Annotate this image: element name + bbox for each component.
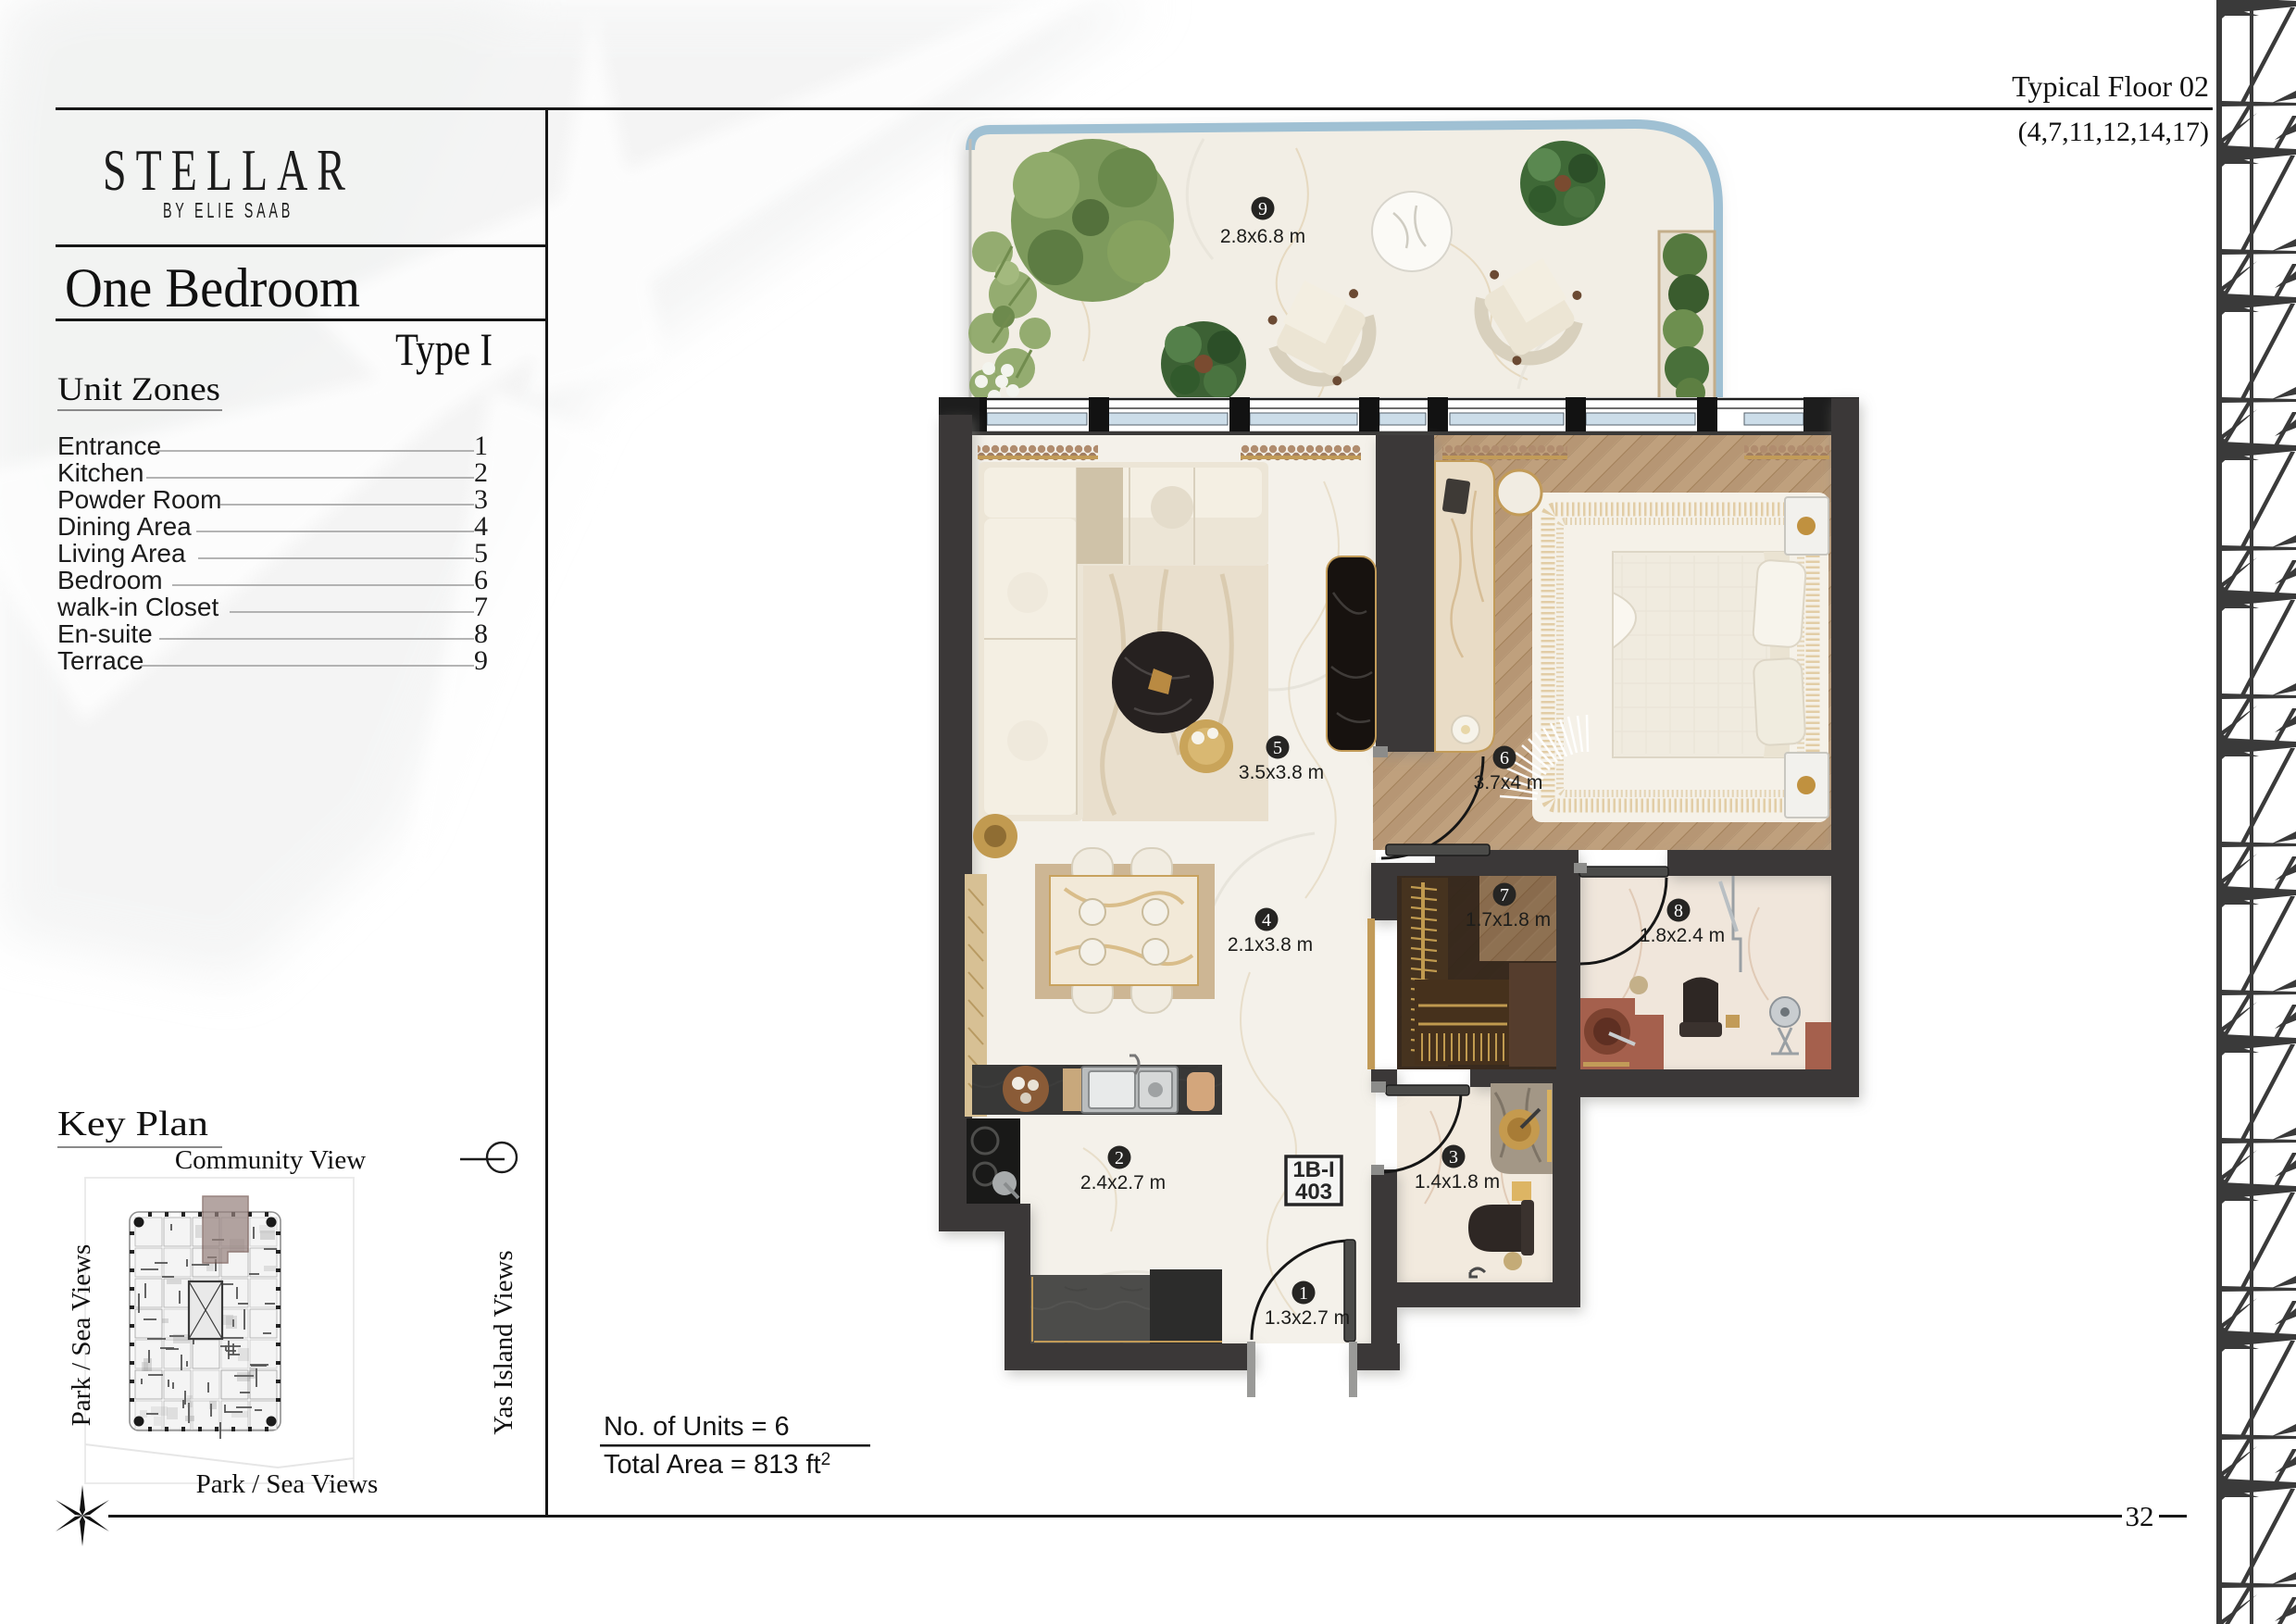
svg-text:6: 6: [1500, 748, 1509, 768]
svg-text:3: 3: [1449, 1147, 1458, 1168]
svg-text:Typical Floor 02: Typical Floor 02: [2012, 69, 2209, 103]
svg-text:Kitchen: Kitchen: [57, 458, 143, 487]
svg-text:1.4x1.8 m: 1.4x1.8 m: [1415, 1171, 1500, 1193]
svg-text:Yas Island Views: Yas Island Views: [489, 1250, 518, 1434]
svg-text:(4,7,11,12,14,17): (4,7,11,12,14,17): [2018, 117, 2209, 147]
svg-text:9: 9: [1258, 199, 1267, 219]
svg-text:Key Plan: Key Plan: [57, 1105, 208, 1143]
svg-text:Total Area = 813 ft2: Total Area = 813 ft2: [604, 1450, 830, 1480]
svg-text:3.5x3.8 m: 3.5x3.8 m: [1239, 762, 1324, 783]
svg-text:En-suite: En-suite: [57, 619, 153, 648]
svg-text:9: 9: [474, 645, 488, 676]
svg-text:2.1x3.8 m: 2.1x3.8 m: [1228, 934, 1313, 956]
svg-text:7: 7: [1500, 885, 1509, 906]
svg-text:4: 4: [1262, 910, 1271, 931]
svg-text:Type I: Type I: [395, 323, 493, 375]
svg-text:Unit Zones: Unit Zones: [57, 370, 220, 407]
svg-text:BY ELIE SAAB: BY ELIE SAAB: [163, 198, 293, 222]
svg-text:No. of Units = 6: No. of Units = 6: [604, 1412, 790, 1442]
svg-text:1.8x2.4 m: 1.8x2.4 m: [1640, 925, 1725, 946]
svg-text:1B-I: 1B-I: [1292, 1157, 1334, 1182]
svg-text:Living Area: Living Area: [57, 539, 186, 568]
svg-text:Park / Sea Views: Park / Sea Views: [67, 1244, 96, 1427]
svg-text:Entrance: Entrance: [57, 431, 161, 460]
svg-text:403: 403: [1295, 1180, 1332, 1205]
svg-text:One Bedroom: One Bedroom: [65, 257, 360, 319]
svg-text:Park / Sea Views: Park / Sea Views: [196, 1469, 379, 1499]
svg-text:5: 5: [1273, 738, 1282, 758]
svg-text:walk-in Closet: walk-in Closet: [56, 593, 218, 621]
svg-text:STELLAR: STELLAR: [103, 137, 355, 203]
svg-text:Dining Area: Dining Area: [57, 512, 192, 541]
svg-text:32: 32: [2126, 1500, 2154, 1532]
svg-text:1.3x2.7 m: 1.3x2.7 m: [1265, 1307, 1350, 1329]
svg-text:2.4x2.7 m: 2.4x2.7 m: [1080, 1172, 1166, 1193]
svg-text:Terrace: Terrace: [57, 646, 143, 675]
svg-text:1: 1: [1299, 1283, 1308, 1304]
svg-text:8: 8: [1674, 901, 1683, 921]
svg-text:Community View: Community View: [175, 1145, 366, 1175]
svg-text:1.7x1.8 m: 1.7x1.8 m: [1466, 909, 1551, 931]
svg-text:3.7x4 m: 3.7x4 m: [1474, 772, 1543, 793]
svg-text:Powder Room: Powder Room: [57, 485, 221, 514]
svg-text:Bedroom: Bedroom: [57, 566, 163, 594]
svg-text:2.8x6.8 m: 2.8x6.8 m: [1220, 226, 1305, 247]
svg-text:2: 2: [1115, 1148, 1124, 1168]
